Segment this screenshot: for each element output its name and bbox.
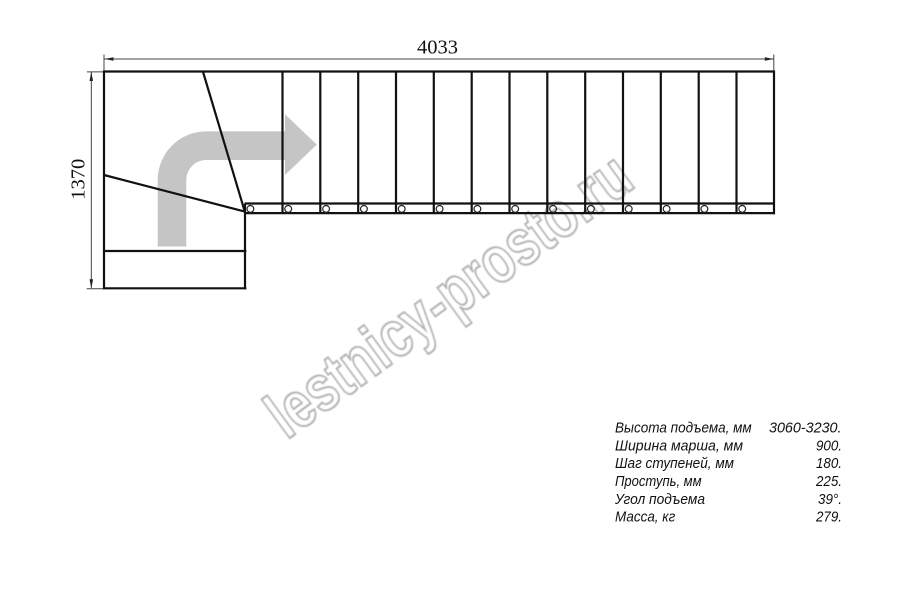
- svg-text:Ширина марша, мм: Ширина марша, мм: [615, 437, 743, 454]
- svg-text:279.: 279.: [815, 509, 842, 526]
- svg-text:Угол подъема: Угол подъема: [614, 491, 705, 508]
- svg-text:Масса, кг: Масса, кг: [615, 509, 676, 526]
- svg-text:180.: 180.: [816, 455, 842, 472]
- svg-text:Проступь, мм: Проступь, мм: [615, 473, 702, 490]
- svg-text:1370: 1370: [68, 159, 90, 200]
- svg-text:Шаг ступеней, мм: Шаг ступеней, мм: [615, 455, 734, 472]
- svg-text:225.: 225.: [815, 473, 842, 490]
- svg-text:39°.: 39°.: [818, 491, 842, 508]
- svg-text:Высота подъема, мм: Высота подъема, мм: [615, 419, 752, 436]
- svg-text:4033: 4033: [417, 37, 458, 59]
- svg-text:3060-3230.: 3060-3230.: [769, 419, 842, 436]
- svg-text:lestnicy-prosto.ru: lestnicy-prosto.ru: [252, 137, 646, 451]
- svg-text:900.: 900.: [816, 437, 842, 454]
